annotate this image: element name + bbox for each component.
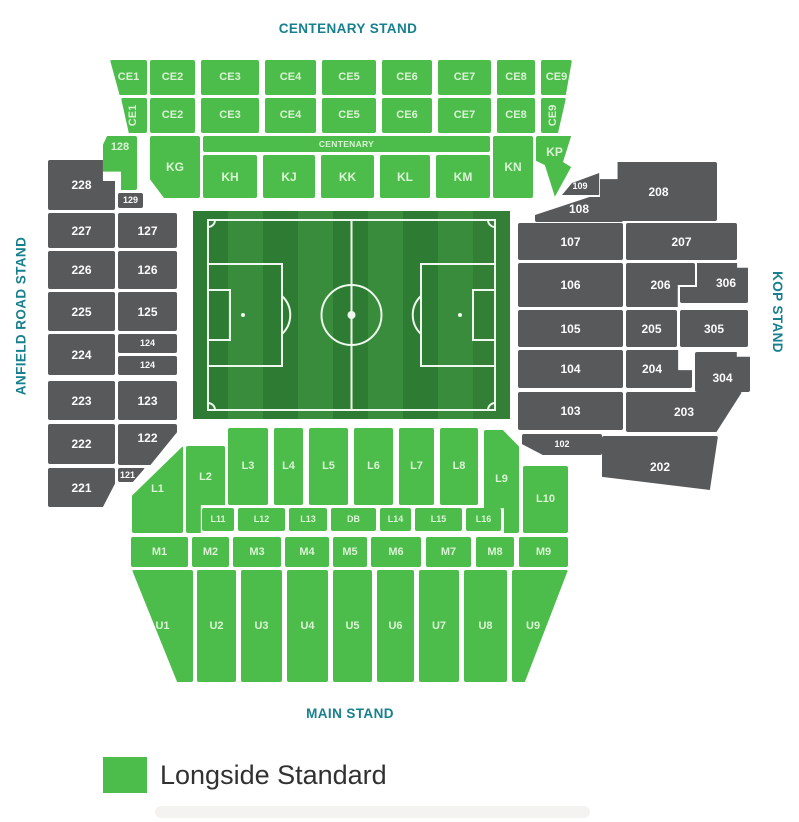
section-ce9-upper[interactable]: CE9 <box>541 60 572 95</box>
section-m6[interactable]: M6 <box>371 537 421 567</box>
section-m8[interactable]: M8 <box>476 537 514 567</box>
section-l7[interactable]: L7 <box>399 428 434 505</box>
section-kh[interactable]: KH <box>203 155 257 198</box>
section-224[interactable]: 224 <box>48 334 115 375</box>
legend-swatch-longside-standard <box>103 757 147 793</box>
section-102[interactable]: 102 <box>522 434 602 455</box>
section-ce6-upper[interactable]: CE6 <box>382 60 432 95</box>
section-u6[interactable]: U6 <box>377 570 414 682</box>
section-122[interactable]: 122 <box>118 424 177 465</box>
section-108[interactable]: 108 <box>535 196 623 222</box>
section-ce2-lower[interactable]: CE2 <box>150 98 195 133</box>
section-m7[interactable]: M7 <box>426 537 471 567</box>
section-ce7-upper[interactable]: CE7 <box>438 60 491 95</box>
section-ce3-lower[interactable]: CE3 <box>201 98 259 133</box>
kop-stand-title: KOP STAND <box>770 271 784 353</box>
section-kk[interactable]: KK <box>321 155 374 198</box>
section-107[interactable]: 107 <box>518 223 623 260</box>
section-225[interactable]: 225 <box>48 292 115 331</box>
section-u9[interactable]: U9 <box>512 570 568 682</box>
section-ce3-upper[interactable]: CE3 <box>201 60 259 95</box>
section-205[interactable]: 205 <box>626 310 677 347</box>
section-u7[interactable]: U7 <box>419 570 459 682</box>
section-123[interactable]: 123 <box>118 381 177 420</box>
section-km[interactable]: KM <box>436 155 490 198</box>
centenary-stand-title: CENTENARY STAND <box>0 22 696 36</box>
section-l16[interactable]: L16 <box>466 508 501 531</box>
section-127[interactable]: 127 <box>118 213 177 248</box>
section-u1[interactable]: U1 <box>132 570 193 682</box>
section-129[interactable]: 129 <box>118 193 143 208</box>
section-124-lower[interactable]: 124 <box>118 356 177 375</box>
main-stand-title: MAIN STAND <box>0 707 700 721</box>
section-ce7-lower[interactable]: CE7 <box>438 98 491 133</box>
anfield-road-stand-title: ANFIELD ROAD STAND <box>14 237 28 395</box>
section-u4[interactable]: U4 <box>287 570 328 682</box>
section-103[interactable]: 103 <box>518 392 623 430</box>
section-centenary-strip[interactable]: CENTENARY <box>203 136 490 152</box>
section-207[interactable]: 207 <box>626 223 737 260</box>
section-l14[interactable]: L14 <box>380 508 411 531</box>
section-m9[interactable]: M9 <box>519 537 568 567</box>
section-223[interactable]: 223 <box>48 381 115 420</box>
section-l3[interactable]: L3 <box>228 428 268 505</box>
section-l4[interactable]: L4 <box>274 428 303 505</box>
section-202[interactable]: 202 <box>602 436 718 498</box>
section-m4[interactable]: M4 <box>285 537 329 567</box>
section-l15[interactable]: L15 <box>415 508 462 531</box>
section-305[interactable]: 305 <box>680 310 748 347</box>
section-u2[interactable]: U2 <box>197 570 236 682</box>
section-u5[interactable]: U5 <box>333 570 372 682</box>
section-m1[interactable]: M1 <box>131 537 188 567</box>
section-m5[interactable]: M5 <box>333 537 367 567</box>
section-m2[interactable]: M2 <box>192 537 229 567</box>
section-kn[interactable]: KN <box>493 136 533 198</box>
section-304[interactable]: 304 <box>695 352 750 392</box>
section-105[interactable]: 105 <box>518 310 623 347</box>
legend-label: Longside Standard <box>160 762 387 789</box>
section-l8[interactable]: L8 <box>440 428 478 505</box>
section-l12[interactable]: L12 <box>238 508 285 531</box>
section-l10[interactable]: L10 <box>523 466 568 533</box>
section-ce8-upper[interactable]: CE8 <box>497 60 535 95</box>
section-226[interactable]: 226 <box>48 251 115 289</box>
section-106[interactable]: 106 <box>518 263 623 307</box>
legend: Longside Standard <box>103 757 387 793</box>
watermark-strip <box>155 806 590 818</box>
section-l6[interactable]: L6 <box>354 428 393 505</box>
section-126[interactable]: 126 <box>118 251 177 289</box>
section-l5[interactable]: L5 <box>309 428 348 505</box>
section-ce2-upper[interactable]: CE2 <box>150 60 195 95</box>
section-kg[interactable]: KG <box>150 136 200 198</box>
section-ce4-upper[interactable]: CE4 <box>265 60 316 95</box>
section-104[interactable]: 104 <box>518 350 623 388</box>
section-ce1-upper[interactable]: CE1 <box>110 60 147 95</box>
section-ce5-upper[interactable]: CE5 <box>322 60 376 95</box>
section-ce9-lower[interactable]: CE9 <box>541 98 566 133</box>
section-121[interactable]: 121 <box>118 468 145 482</box>
section-ce8-lower[interactable]: CE8 <box>497 98 535 133</box>
section-221[interactable]: 221 <box>48 468 115 507</box>
section-kl[interactable]: KL <box>380 155 430 198</box>
section-227[interactable]: 227 <box>48 213 115 248</box>
section-124-upper[interactable]: 124 <box>118 334 177 353</box>
section-l11[interactable]: L11 <box>202 508 234 531</box>
section-ce6-lower[interactable]: CE6 <box>382 98 432 133</box>
section-ce1-lower[interactable]: CE1 <box>121 98 147 133</box>
section-m3[interactable]: M3 <box>233 537 281 567</box>
section-u3[interactable]: U3 <box>241 570 282 682</box>
football-pitch <box>193 211 510 419</box>
section-222[interactable]: 222 <box>48 424 115 464</box>
section-u8[interactable]: U8 <box>464 570 507 682</box>
section-l13[interactable]: L13 <box>289 508 327 531</box>
section-203[interactable]: 203 <box>626 392 742 432</box>
section-kj[interactable]: KJ <box>263 155 315 198</box>
section-db[interactable]: DB <box>331 508 376 531</box>
stadium-seat-map: CENTENARY STAND MAIN STAND ANFIELD ROAD … <box>0 0 799 822</box>
section-204[interactable]: 204 <box>626 350 692 388</box>
section-125[interactable]: 125 <box>118 292 177 331</box>
section-ce5-lower[interactable]: CE5 <box>322 98 376 133</box>
section-ce4-lower[interactable]: CE4 <box>265 98 316 133</box>
